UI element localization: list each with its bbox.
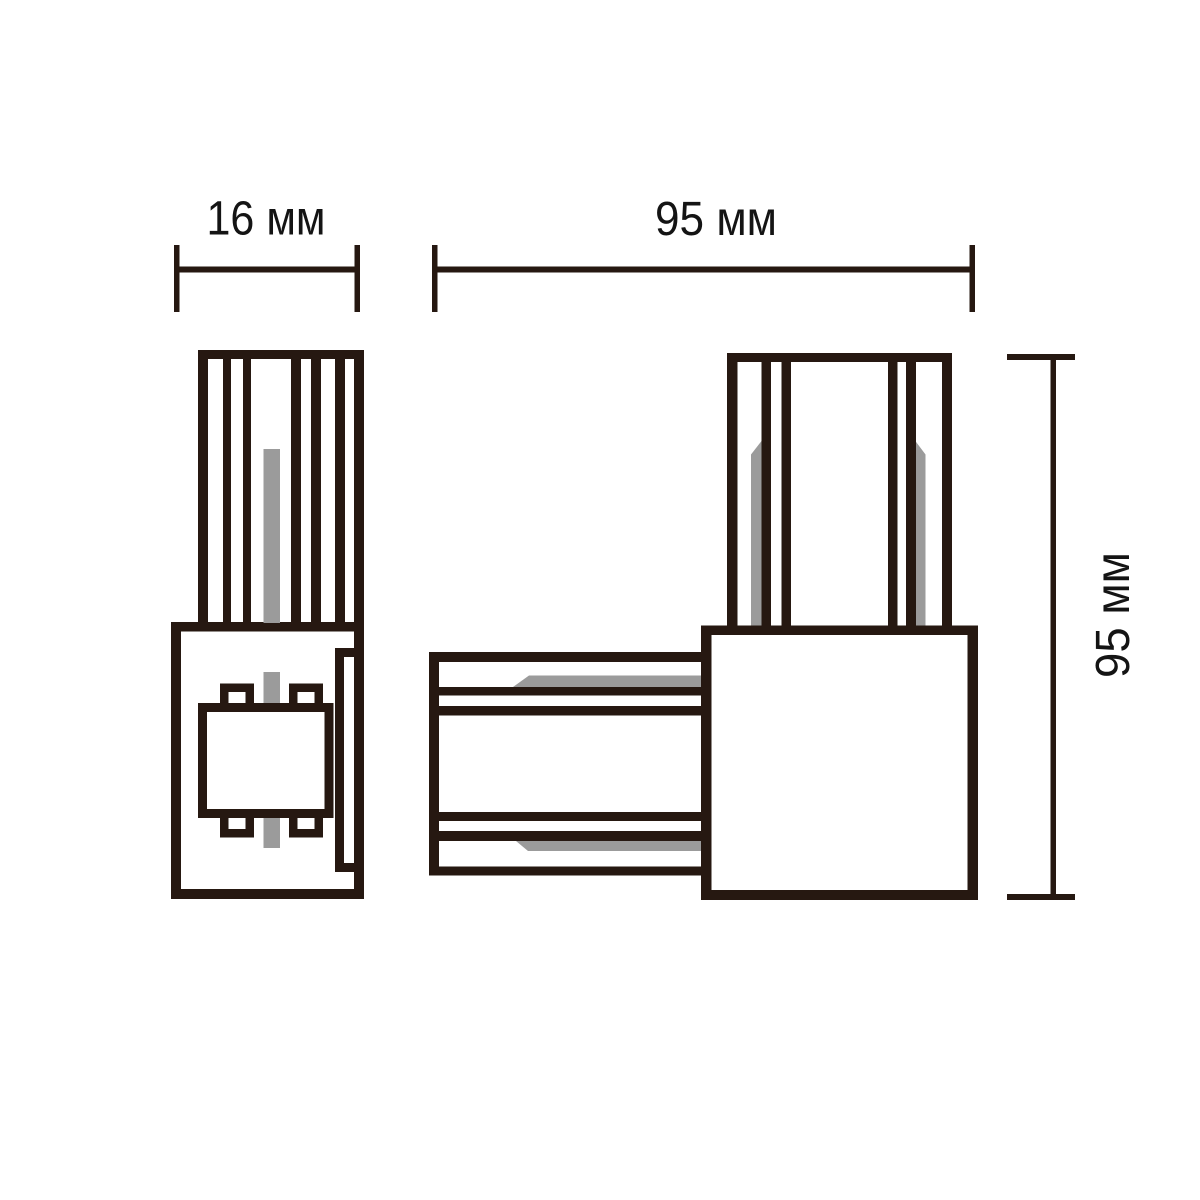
svg-text:16 мм: 16 мм bbox=[207, 193, 326, 246]
svg-text:95 мм: 95 мм bbox=[1087, 552, 1140, 678]
svg-text:95 мм: 95 мм bbox=[655, 193, 777, 246]
